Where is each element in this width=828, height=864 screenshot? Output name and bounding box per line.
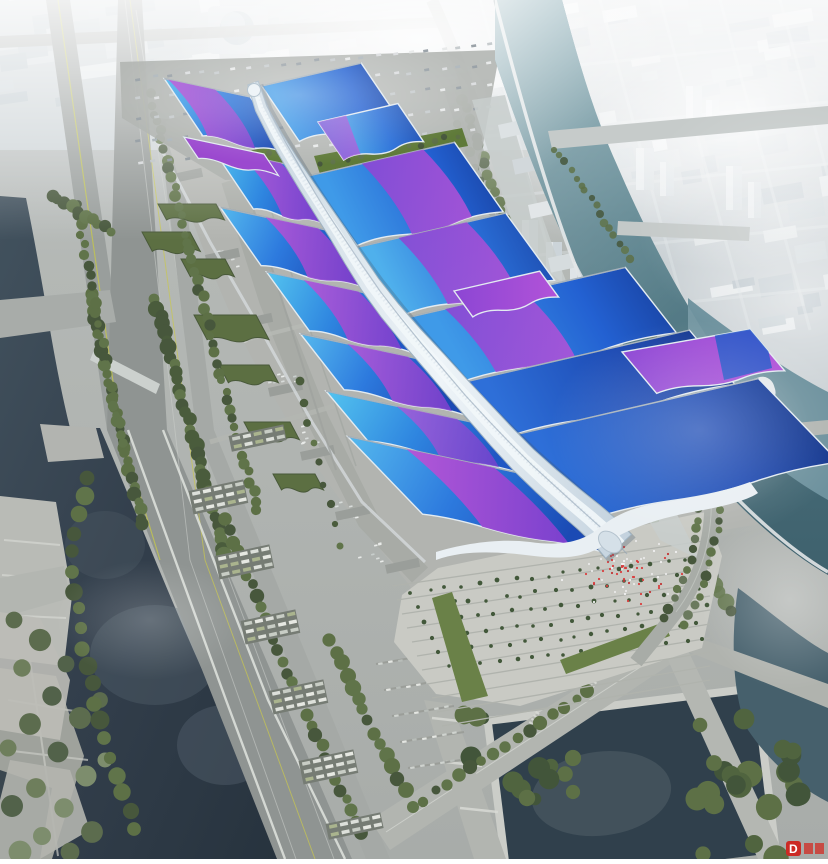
svg-text:D: D	[789, 842, 798, 856]
